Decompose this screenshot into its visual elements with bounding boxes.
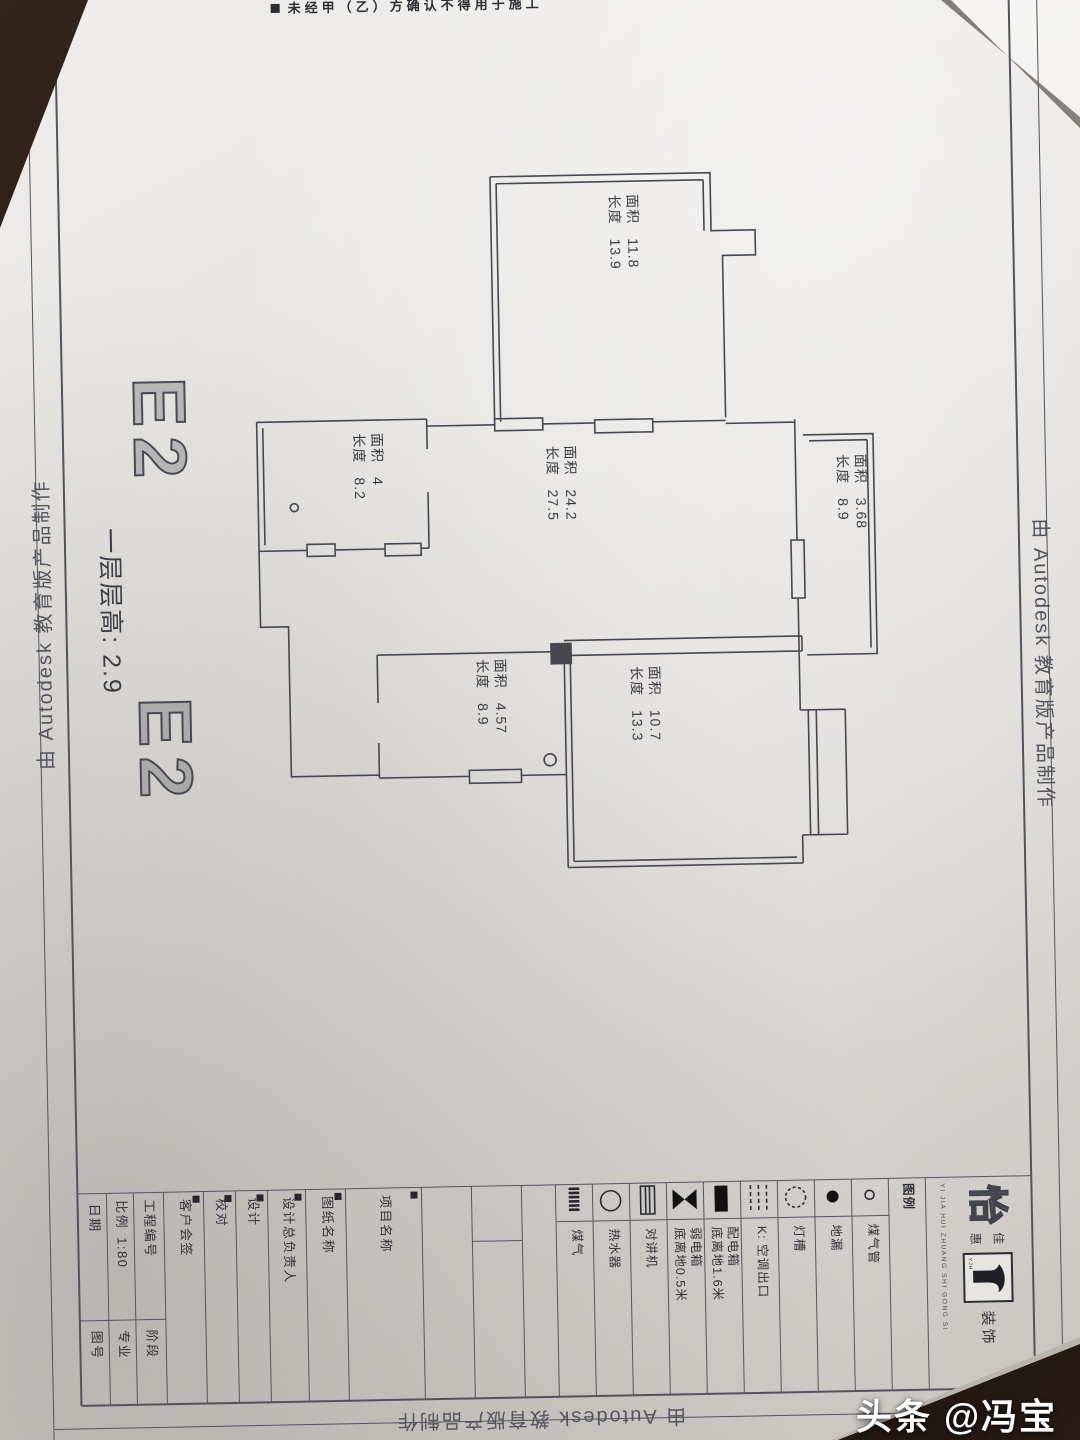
gas-coil-icon <box>568 1187 579 1211</box>
wall-pillar <box>551 643 571 663</box>
room-label: 面积3.68 长度8.9 <box>833 454 869 530</box>
note-bullet-icon <box>271 4 280 13</box>
legend-label-gas: 煤气 <box>568 1229 584 1256</box>
logo-char-sub2: 惠 <box>967 1233 984 1245</box>
floor-plan <box>252 170 881 874</box>
room-label: 面积11.8 长度13.9 <box>605 194 641 270</box>
field-date: 日期 <box>86 1204 103 1233</box>
logo-char-sub1: 佳 <box>990 1232 1007 1244</box>
room-label: 面积4.57 长度8.9 <box>473 659 509 735</box>
logo-suffix: 装饰 <box>978 1310 1000 1346</box>
room-label: 面积10.7 长度13.3 <box>627 666 663 742</box>
legend-symbols <box>568 1182 874 1216</box>
room-label: 面积24.2 长度27.5 <box>543 445 579 521</box>
floor-drain-icon <box>826 1190 838 1202</box>
field-drawing-no: 图号 <box>88 1330 105 1359</box>
field-project-no: 工程编号 <box>141 1199 158 1257</box>
legend-header: 图例 <box>899 1183 915 1210</box>
field-check: 校对 <box>213 1198 230 1227</box>
gas-pipe-icon <box>865 1190 874 1199</box>
drawing-sheet: 未经甲（乙）方确认不得用于施工 由 Autodesk 教育版产品制作 由 Aut… <box>0 0 1080 1440</box>
plan-title-e2-2: E2 <box>118 696 213 808</box>
edge-stamp-bottom: 由 Autodesk 教育版产品制作 <box>396 1403 687 1438</box>
toutiao-watermark: 头条 @冯宝成5 <box>856 1388 1080 1440</box>
intercom-icon <box>640 1186 655 1214</box>
field-chief-designer: 设计总负责人 <box>279 1197 297 1284</box>
power-box-icon <box>714 1185 727 1211</box>
legend-label-power-box: 配电箱 底离地1.6米 <box>708 1226 741 1301</box>
logo-mark-text: YJH <box>967 1258 973 1271</box>
fixture-circle <box>290 504 298 512</box>
legend-label-light-cove: 灯槽 <box>790 1225 806 1252</box>
field-design: 设计 <box>245 1197 262 1226</box>
legend-label-weak-current-box: 弱电箱 底离地0.5米 <box>671 1227 704 1302</box>
legend-label-gas-pipe: 煤气管 <box>864 1224 880 1265</box>
field-phase: 阶段 <box>143 1329 160 1358</box>
ac-outlet-icon <box>750 1185 766 1211</box>
plan-title-e2: E2 <box>112 376 207 488</box>
legend-label-floor-drain: 地漏 <box>827 1224 843 1251</box>
field-discipline: 专业 <box>115 1330 132 1359</box>
floor-height-title: 一层层高: 2.9 <box>93 528 127 695</box>
light-cove-icon <box>785 1187 805 1207</box>
wall-lines <box>252 170 881 874</box>
room-label: 面积4 长度8.2 <box>350 433 386 500</box>
field-project-name: 项目名称 <box>376 1195 393 1253</box>
weak-current-box-icon <box>672 1189 696 1209</box>
legend-label-intercom: 对讲机 <box>642 1228 658 1269</box>
water-heater-icon <box>600 1191 620 1211</box>
floor-drain-symbol <box>544 754 556 766</box>
field-client-sign: 客户会签 <box>177 1199 194 1257</box>
field-scale: 比例1:80 <box>113 1200 131 1269</box>
logo-english: YI JIA HUI ZHUANG SHI GONG SI <box>938 1183 948 1331</box>
photo-canvas: 未经甲（乙）方确认不得用于施工 由 Autodesk 教育版产品制作 由 Aut… <box>0 0 1080 1440</box>
company-logo-block: 怡 佳 惠 YJH 装饰 YI JIA HUI ZHUANG SHI GONG … <box>925 1176 1033 1390</box>
logo-char-main: 怡 <box>966 1184 1007 1225</box>
field-drawing-name: 图纸名称 <box>318 1196 335 1254</box>
company-logo-icon: YJH <box>963 1252 1014 1303</box>
legend-label-ac-outlet: K: 空调出口 <box>753 1226 770 1299</box>
legend-label-water-heater: 热水器 <box>605 1229 621 1270</box>
